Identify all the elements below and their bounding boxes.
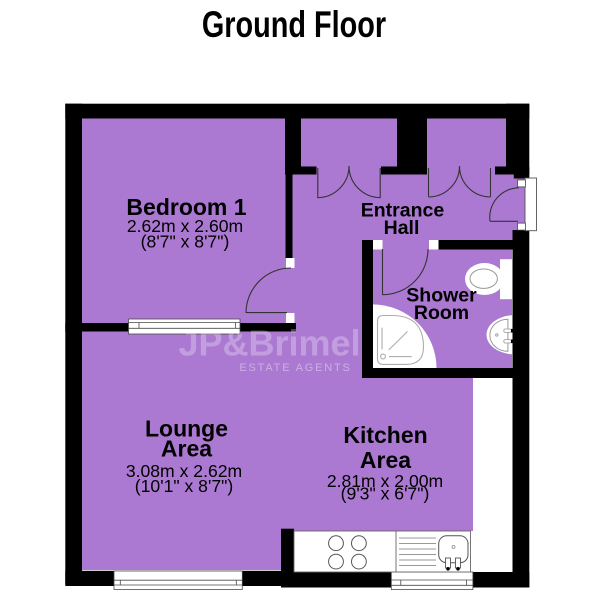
svg-text:(9'3" x 6'7"): (9'3" x 6'7") [341,484,430,504]
svg-text:ESTATE AGENTS: ESTATE AGENTS [239,362,351,374]
svg-text:(10'1" x 8'7"): (10'1" x 8'7") [135,476,233,496]
svg-text:(8'7" x 8'7"): (8'7" x 8'7") [141,232,230,252]
svg-text:Hall: Hall [384,217,420,239]
svg-text:Area: Area [360,447,411,473]
svg-text:Kitchen: Kitchen [343,422,427,448]
svg-text:Area: Area [161,436,212,462]
svg-text:Ground Floor: Ground Floor [202,5,386,46]
svg-text:Room: Room [414,302,469,324]
svg-text:JP&Brimel: JP&Brimel [178,323,360,364]
